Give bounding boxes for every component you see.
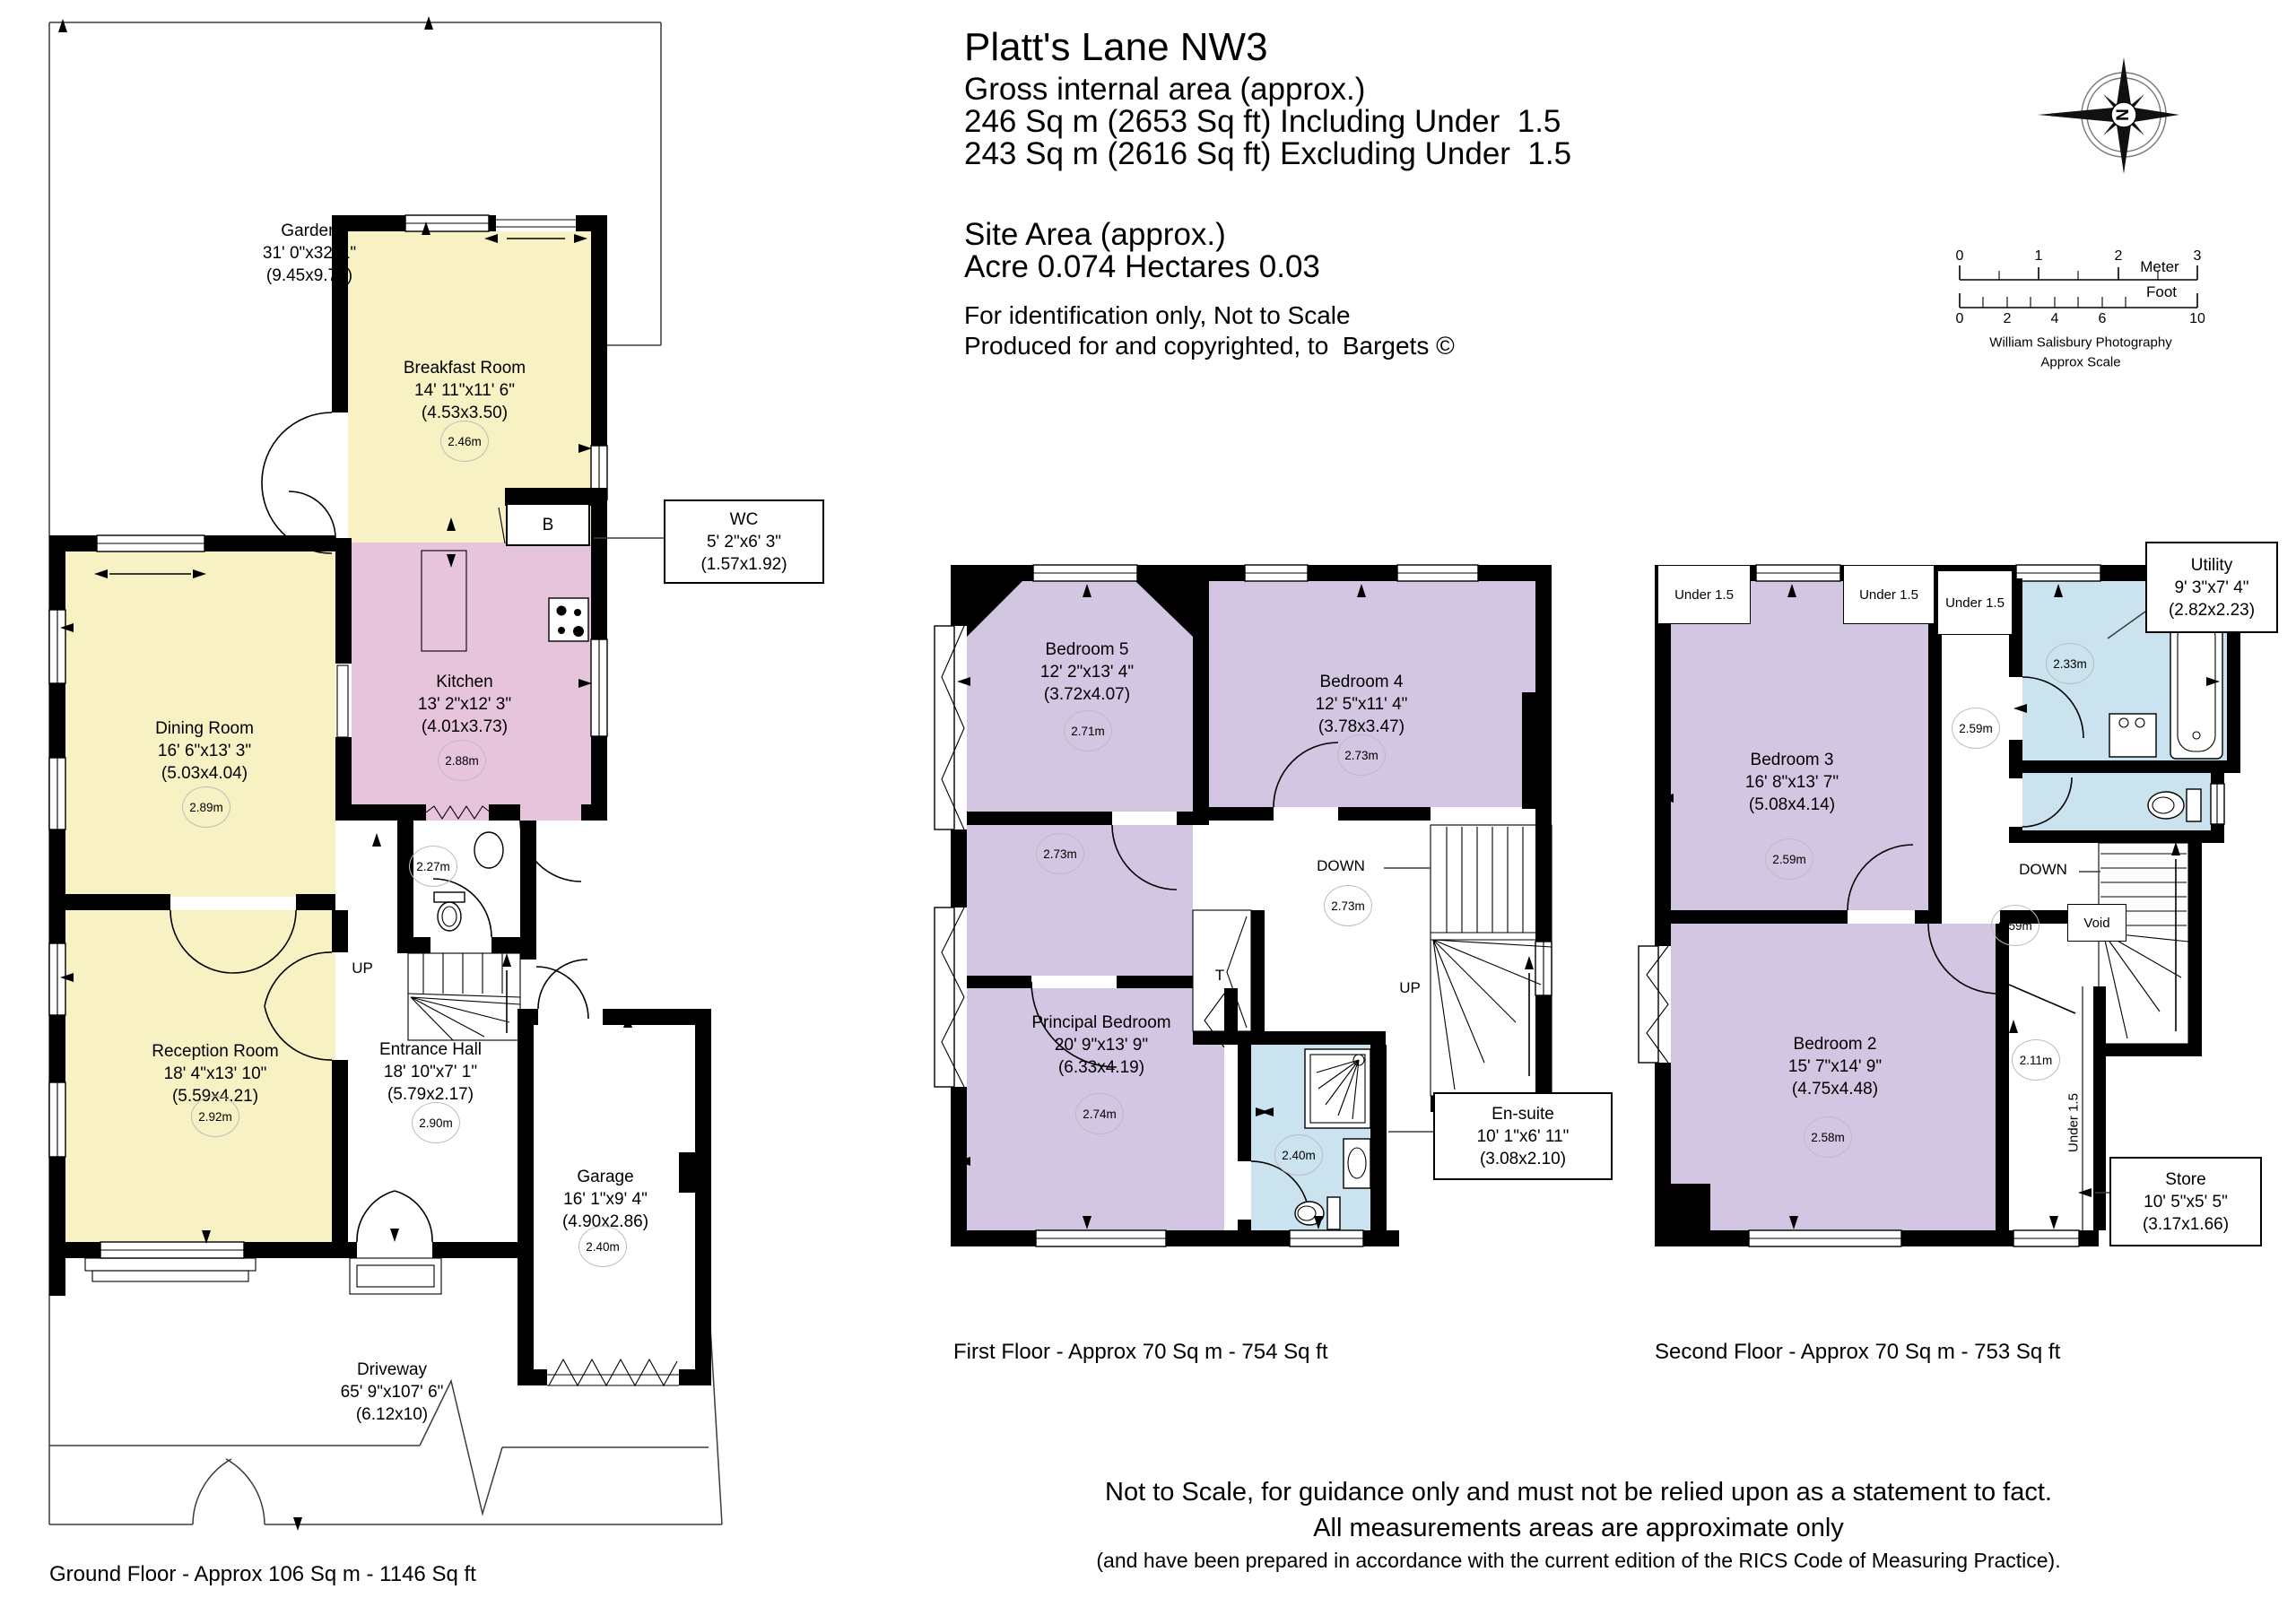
foot-tick-2: 2 [2004, 311, 2012, 327]
ceiling-height-hallway: 2.11m [2012, 1039, 2060, 1081]
ceiling-height-garage: 2.40m [578, 1226, 627, 1267]
ceiling-height-hall-second: 2.59m [1952, 708, 2000, 749]
wc-label-box: WC 5' 2"x6' 3" (1.57x1.92) [664, 499, 824, 584]
meter-tick-2: 2 [2115, 248, 2123, 265]
copyright-note: Produced for and copyrighted, to Bargets… [964, 332, 1455, 360]
site-area-value: Acre 0.074 Hectares 0.03 [964, 249, 1320, 285]
disclaimer-line3: (and have been prepared in accordance wi… [942, 1549, 2215, 1573]
principal-bedroom-label: Principal Bedroom 20' 9"x13' 9" (6.33x4.… [1031, 1012, 1170, 1079]
stairs-up-label-first: UP [1399, 979, 1421, 997]
stairs-up-label-ground: UP [352, 960, 373, 977]
boiler-label: B [543, 516, 554, 535]
disclaimer-line2: All measurements areas are approximate o… [942, 1514, 2215, 1543]
ceiling-height-breakfast: 2.46m [440, 421, 489, 462]
ceiling-height-dressing: 2.73m [1036, 833, 1084, 874]
ground-floor-caption: Ground Floor - Approx 106 Sq m - 1146 Sq… [49, 1562, 476, 1587]
second-floor-plan [1639, 565, 2240, 1246]
first-floor-caption: First Floor - Approx 70 Sq m - 754 Sq ft [953, 1340, 1328, 1365]
ceiling-height-ensuite: 2.40m [1274, 1134, 1323, 1176]
stairs-first [1431, 825, 1552, 1096]
ceiling-height-bathroom: 2.33m [2046, 643, 2094, 684]
ground-floor-plan [49, 16, 722, 1531]
bedroom5-label: Bedroom 5 12' 2"x13' 4" (3.72x4.07) [1040, 638, 1134, 706]
bedroom4-label: Bedroom 4 12' 5"x11' 4" (3.78x3.47) [1316, 671, 1408, 738]
store-label-box: Store 10' 5"x5' 5" (3.17x1.66) [2109, 1157, 2262, 1246]
ceiling-height-principal: 2.74m [1075, 1093, 1124, 1134]
foot-tick-0: 0 [1956, 311, 1964, 327]
foot-tick-10: 10 [2189, 311, 2205, 327]
stairs-ground [408, 953, 520, 1040]
disclaimer-line1: Not to Scale, for guidance only and must… [942, 1478, 2215, 1507]
site-area-label: Site Area (approx.) [964, 217, 1226, 253]
compass-rose [2038, 57, 2179, 174]
dining-room-label: Dining Room 16' 6"x13' 3" (5.03x4.04) [155, 717, 254, 785]
foot-unit-label: Foot [2146, 283, 2177, 301]
under-15-box-1: Under 1.5 [1657, 565, 1751, 624]
under-15-vertical-label: Under 1.5 [2066, 1093, 2082, 1152]
floorplan-page: Platt's Lane NW3 Gross internal area (ap… [0, 0, 2296, 1624]
ceiling-height-bedroom4: 2.73m [1337, 734, 1386, 776]
under-15-box-3: Under 1.5 [1937, 570, 2013, 635]
ceiling-height-wc: 2.27m [409, 846, 457, 887]
breakfast-room-label: Breakfast Room 14' 11"x11' 6" (4.53x3.50… [404, 357, 526, 424]
ceiling-height-bedroom5: 2.71m [1064, 710, 1112, 751]
page-title: Platt's Lane NW3 [964, 25, 1268, 70]
scale-credit: William Salisbury Photography [1989, 335, 2171, 351]
foot-tick-4: 4 [2051, 311, 2059, 327]
utility-label-box: Utility 9' 3"x7' 4" (2.82x2.23) [2145, 542, 2278, 633]
entrance-hall-label: Entrance Hall 18' 10"x7' 1" (5.79x2.17) [379, 1038, 482, 1106]
ceiling-height-hall: 2.90m [412, 1102, 460, 1143]
meter-tick-0: 0 [1956, 248, 1964, 265]
meter-tick-1: 1 [2035, 248, 2043, 265]
scale-approx-label: Approx Scale [2040, 355, 2120, 370]
bedroom3-label: Bedroom 3 16' 8"x13' 7" (5.08x4.14) [1745, 749, 1839, 816]
void-box: Void [2067, 904, 2126, 942]
kitchen-label: Kitchen 13' 2"x12' 3" (4.01x3.73) [418, 671, 511, 738]
gross-area-line2: 243 Sq m (2616 Sq ft) Excluding Under 1.… [964, 136, 1571, 172]
ceiling-height-landing-second: 2.59m [1991, 905, 2039, 946]
ceiling-height-bedroom3: 2.59m [1765, 838, 1813, 880]
meter-tick-3: 3 [2194, 248, 2202, 265]
ceiling-height-dining: 2.89m [182, 786, 230, 828]
gross-area-line1: 246 Sq m (2653 Sq ft) Including Under 1.… [964, 104, 1561, 140]
identification-note: For identification only, Not to Scale [964, 301, 1351, 330]
stairs-second [2093, 834, 2202, 1056]
ceiling-height-reception: 2.92m [191, 1096, 239, 1137]
ceiling-height-bedroom2: 2.58m [1804, 1116, 1852, 1158]
ceiling-height-landing-first: 2.73m [1324, 885, 1372, 926]
ceiling-height-kitchen: 2.88m [438, 740, 486, 781]
gross-area-label: Gross internal area (approx.) [964, 72, 1365, 108]
compass-north-label: N [2114, 109, 2134, 121]
meter-unit-label: Meter [2140, 258, 2179, 276]
under-15-box-2: Under 1.5 [1843, 565, 1935, 624]
stairs-down-label-first: DOWN [1317, 857, 1365, 875]
bedroom2-label: Bedroom 2 15' 7"x14' 9" (4.75x4.48) [1788, 1033, 1882, 1100]
second-floor-caption: Second Floor - Approx 70 Sq m - 753 Sq f… [1655, 1340, 2060, 1365]
foot-tick-6: 6 [2099, 311, 2107, 327]
garden-label: Garden 31' 0"x32' 1" (9.45x9.77) [263, 220, 356, 287]
stairs-down-label-second: DOWN [2019, 861, 2067, 879]
garage-label: Garage 16' 1"x9' 4" (4.90x2.86) [562, 1166, 648, 1233]
driveway-label: Driveway 65' 9"x107' 6" (6.12x10) [341, 1359, 444, 1426]
tank-label: T [1215, 967, 1224, 985]
ensuite-label-box: En-suite 10' 1"x6' 11" (3.08x2.10) [1433, 1092, 1613, 1180]
